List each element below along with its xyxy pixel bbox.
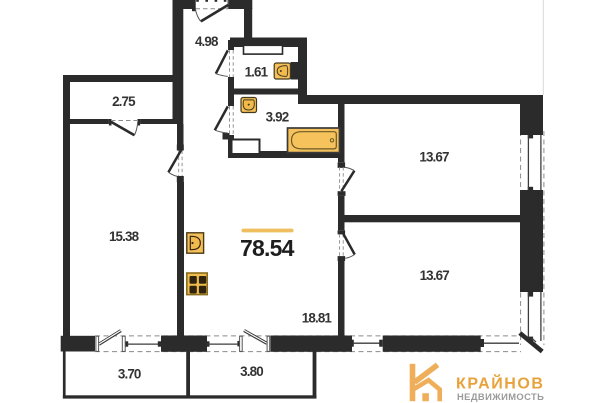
svg-text:3.80: 3.80 bbox=[240, 364, 263, 379]
svg-text:3.70: 3.70 bbox=[118, 367, 141, 382]
svg-text:3.92: 3.92 bbox=[266, 110, 289, 125]
svg-text:13.67: 13.67 bbox=[420, 268, 450, 283]
svg-text:15.38: 15.38 bbox=[109, 229, 140, 244]
svg-text:1.61: 1.61 bbox=[245, 64, 269, 79]
svg-text:18.81: 18.81 bbox=[302, 311, 333, 326]
svg-text:НЕДВИЖИМОСТЬ: НЕДВИЖИМОСТЬ bbox=[457, 391, 544, 402]
svg-text:78.54: 78.54 bbox=[240, 235, 295, 261]
svg-text:4.98: 4.98 bbox=[195, 34, 219, 49]
svg-text:2.75: 2.75 bbox=[112, 94, 136, 109]
svg-text:13.67: 13.67 bbox=[419, 149, 449, 164]
svg-text:КРАЙНОВ: КРАЙНОВ bbox=[456, 374, 545, 393]
